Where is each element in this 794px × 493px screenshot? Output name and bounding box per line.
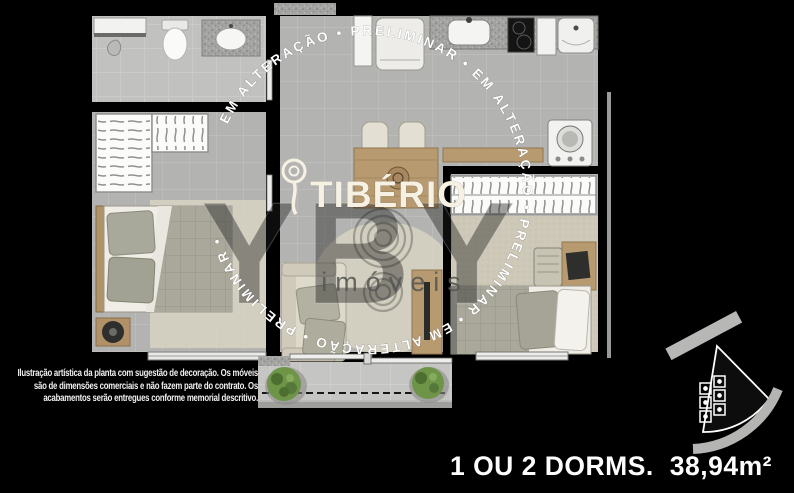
washer-knob (556, 157, 561, 162)
closet-hangers (154, 116, 206, 150)
faucet-icon (229, 24, 233, 28)
agency-sub-text: imóveis (321, 267, 469, 297)
vanity-sink-icon (216, 28, 246, 50)
desk-chair-icon (534, 248, 562, 286)
floorplan-page: YBY imóveis EM ALTERAÇÃO • PRELIMINAR • … (0, 0, 794, 493)
tank-faucet (574, 26, 579, 31)
disclaimer-line: Ilustração artística da planta com suges… (0, 368, 258, 381)
washer-knob (580, 157, 585, 162)
kitchen-sill (274, 3, 336, 15)
laundry-tank-icon (558, 18, 594, 53)
keyplan (665, 311, 778, 449)
toilet-icon (163, 28, 187, 60)
area-label: 38,94m² (670, 451, 772, 482)
kitchen-sink-icon (448, 20, 490, 45)
disclaimer-text: Ilustração artística da planta com suges… (0, 368, 258, 406)
pillow-icon (107, 210, 156, 255)
keyplan-bar (665, 311, 742, 360)
plant-icon (409, 367, 449, 403)
wall-bathroom-bottom (92, 102, 280, 112)
plant-icon (265, 367, 307, 405)
disclaimer-line: são de dimensões comerciais e não fazem … (0, 381, 258, 394)
floor-plan-canvas: YBY imóveis EM ALTERAÇÃO • PRELIMINAR • … (0, 0, 794, 493)
unit-summary: 1 OU 2 DORMS. 38,94m² (450, 451, 772, 482)
outer-wall-cap (607, 92, 611, 358)
laptop-icon (566, 251, 591, 280)
counter-cabinet-icon (537, 18, 556, 55)
terrace-sill (258, 356, 290, 366)
washer-drum (562, 131, 578, 147)
pillow-icon (107, 257, 155, 303)
brand-logo-text: TIBÉRIO (310, 174, 467, 215)
lamp-shade (109, 328, 117, 336)
pillow-icon (554, 289, 590, 351)
shower-tray-icon (94, 18, 146, 34)
dorms-label: 1 OU 2 DORMS. (450, 451, 654, 482)
shower-glass-icon (94, 33, 146, 37)
disclaimer-line: acabamentos serão entregues conforme mem… (0, 393, 258, 406)
cooktop-icon (508, 18, 534, 52)
faucet-icon (466, 17, 472, 23)
closet-hangers (98, 116, 150, 190)
washer-knob (568, 157, 573, 162)
